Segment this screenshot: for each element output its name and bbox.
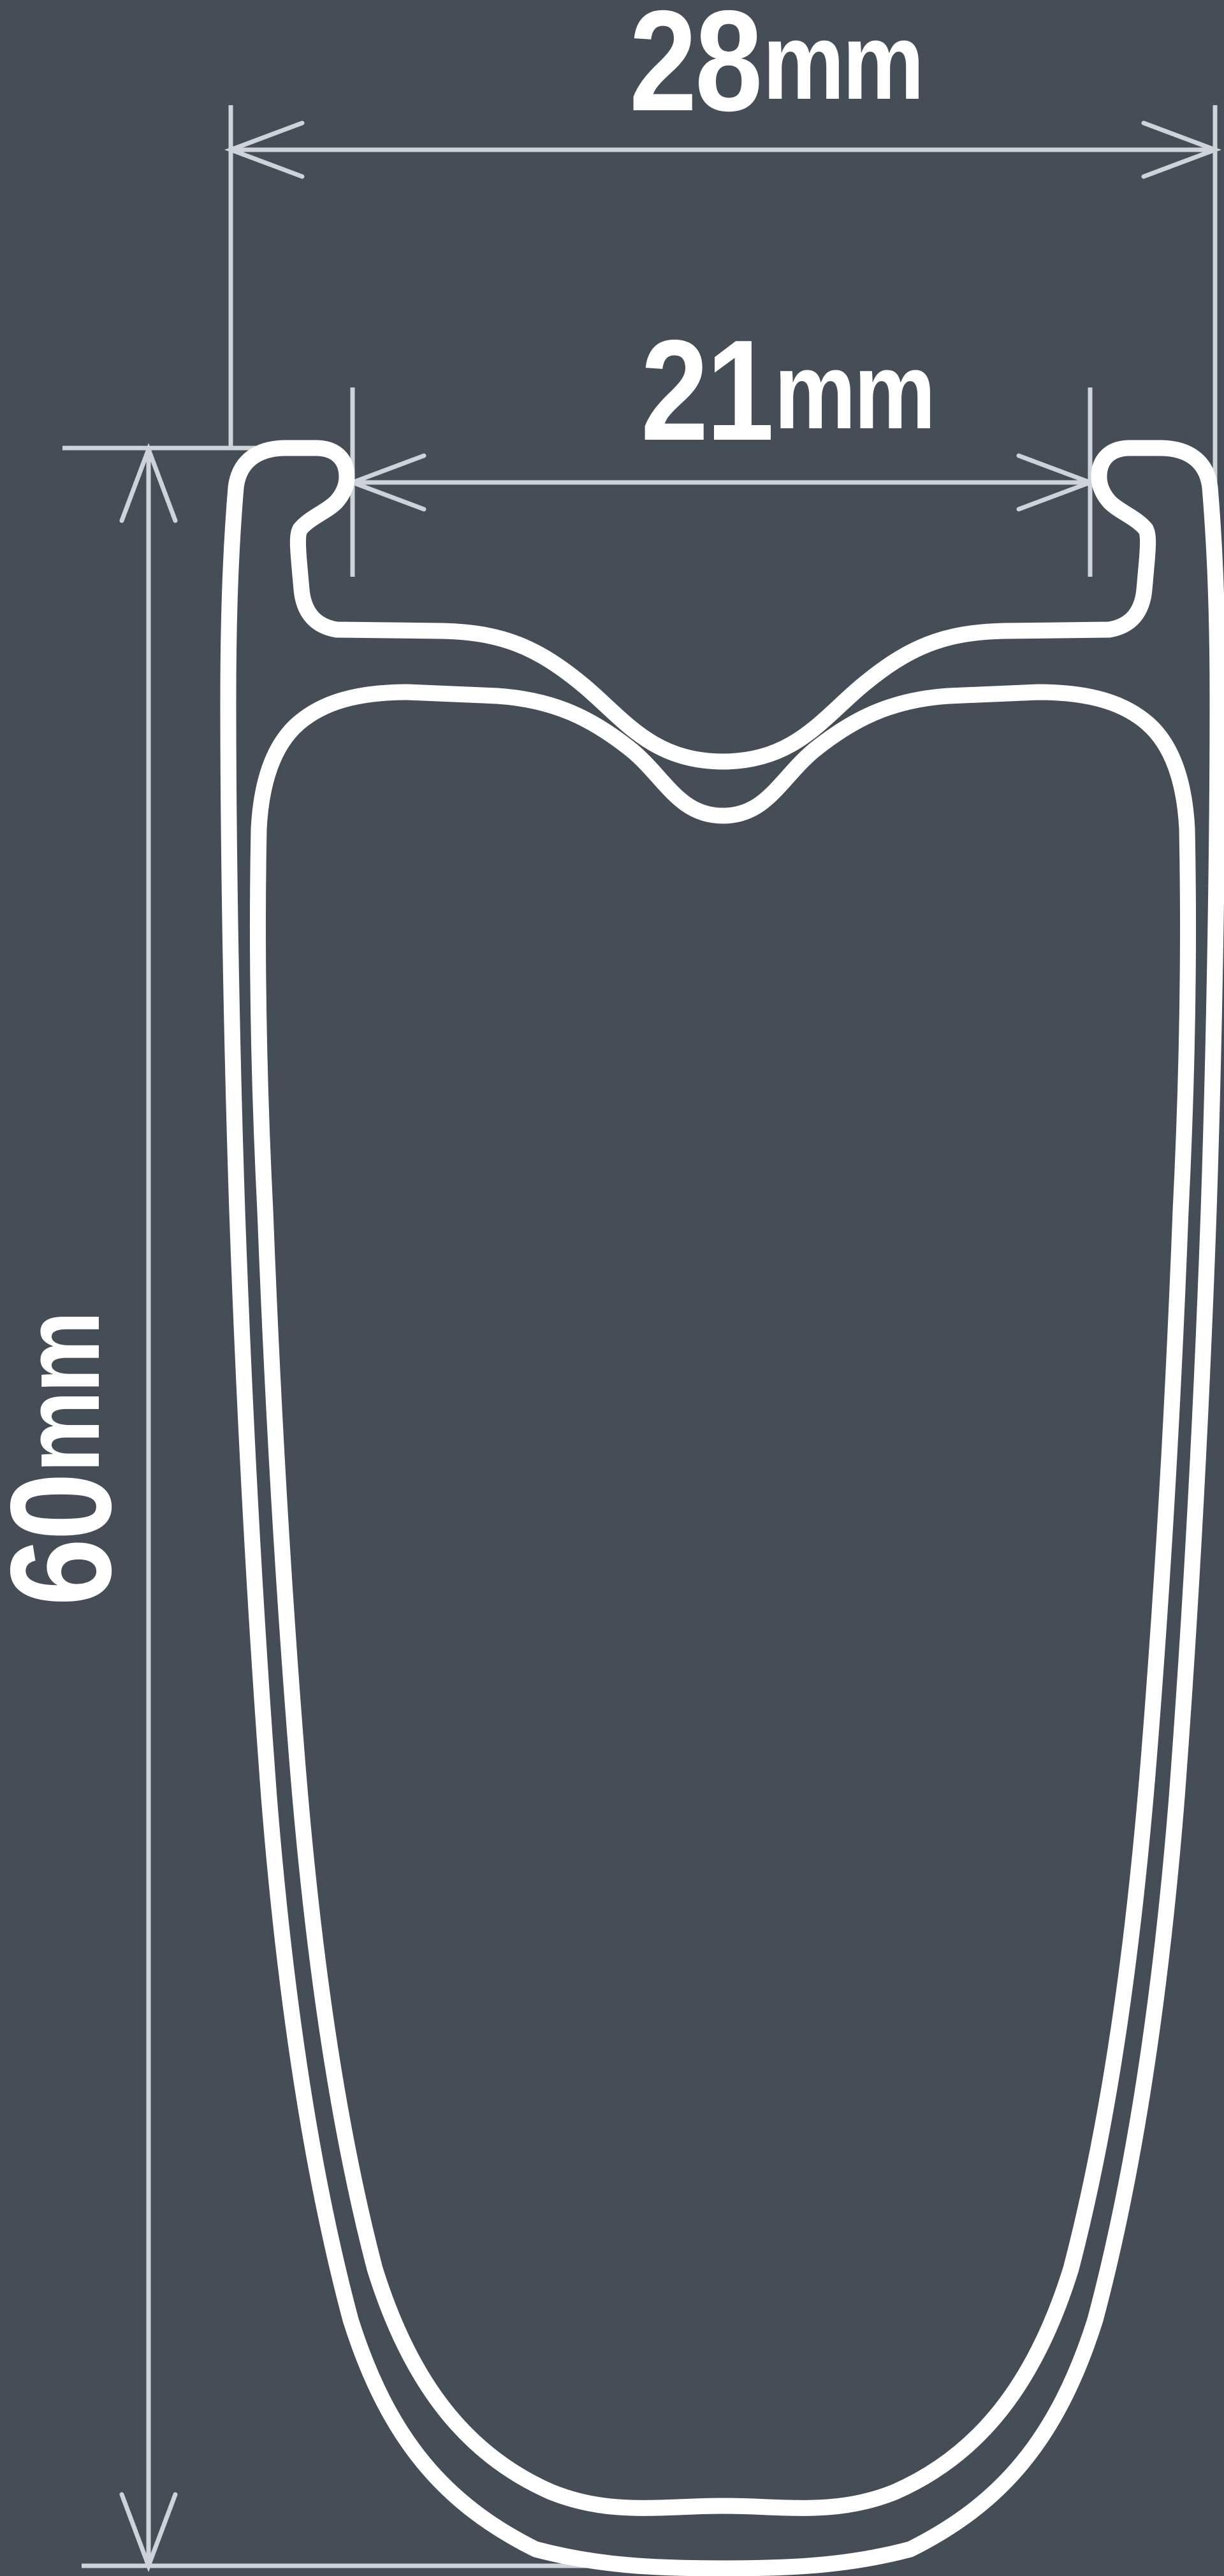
outer-width-label: 28mm (629, 0, 922, 141)
internal-width-label: 21mm (641, 310, 933, 470)
depth-label: 60mm (0, 1313, 141, 1606)
rim-diagram: 28mm 21mm 60mm (0, 0, 1224, 2576)
background (0, 0, 1224, 2576)
rim-cross-section-drawing: 28mm 21mm 60mm (0, 0, 1224, 2576)
